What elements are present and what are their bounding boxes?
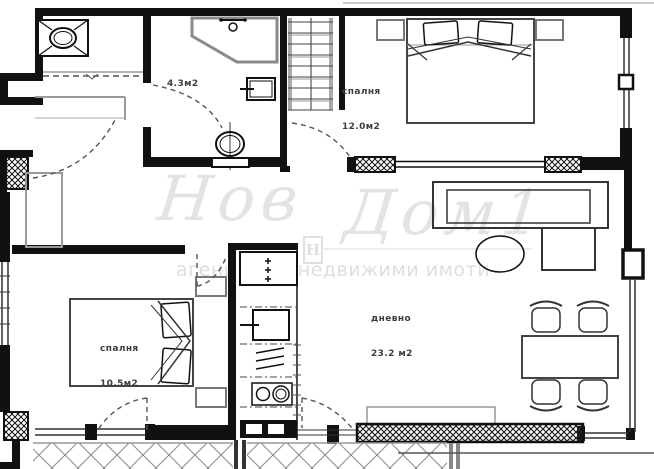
- floor-plan: Нов Дом1 Н агенция за недвижими имоти: [0, 0, 654, 469]
- room-label-bedroom-top: спалня 12.0м2: [342, 64, 381, 156]
- tv-cabinet: [367, 407, 495, 425]
- pillow: [161, 348, 191, 384]
- wardrobe: [26, 173, 62, 247]
- pillow: [161, 302, 191, 338]
- sofa: [433, 182, 608, 228]
- dining-table: [522, 336, 618, 378]
- bathroom: [192, 18, 277, 170]
- balconies: [0, 440, 654, 469]
- nightstand: [536, 20, 563, 40]
- balcony-right: [247, 443, 447, 469]
- dining-chairs: [530, 302, 609, 411]
- room-label-bathroom: 4.3м2: [167, 56, 199, 114]
- nightstand: [196, 277, 226, 296]
- balcony-left: [33, 443, 233, 469]
- entry-door-swing: [33, 120, 115, 178]
- pillow: [423, 21, 458, 45]
- entry-hall: [26, 20, 143, 247]
- stairs: [288, 18, 333, 110]
- corner-shower: [192, 18, 277, 62]
- walls: [0, 3, 654, 469]
- door-swing: [302, 398, 352, 428]
- room-label-living: дневно 23.2 м2: [371, 291, 413, 383]
- floor-plan-drawing: [0, 0, 654, 469]
- door-swing: [197, 255, 227, 286]
- nightstand: [377, 20, 404, 40]
- vent-symbol: [256, 348, 284, 369]
- double-bed: [407, 19, 534, 123]
- pillow: [477, 21, 512, 45]
- room-label-bedroom-left: спалня 10.5м2: [100, 321, 139, 413]
- nightstand: [196, 388, 226, 407]
- living-room: [302, 182, 618, 444]
- radiator: [357, 424, 583, 442]
- burner-symbols: [265, 258, 271, 282]
- kitchen: [240, 250, 301, 440]
- shower-head: [229, 23, 237, 31]
- coffee-table: [476, 236, 524, 272]
- bedroom-left: [70, 254, 227, 431]
- sofa-chaise: [542, 228, 595, 270]
